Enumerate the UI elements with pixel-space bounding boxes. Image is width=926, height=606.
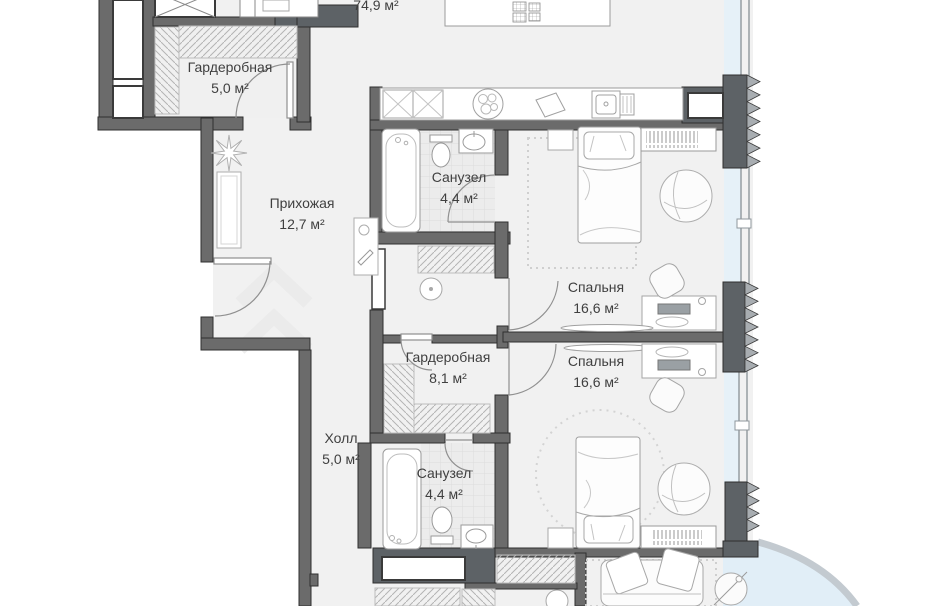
desk [642, 296, 716, 330]
hall-bench [217, 172, 241, 248]
room-name: Гардеробная [188, 57, 273, 78]
toilet [432, 507, 452, 533]
label-wardrobe-8: Гардеробная 8,1 м² [406, 347, 491, 389]
shaft-x-box [155, 0, 215, 17]
nightstand [548, 528, 573, 548]
label-living-area: 74,9 м² [353, 0, 398, 16]
nightstand [548, 130, 573, 150]
bed [576, 437, 640, 548]
pillow [584, 516, 633, 543]
hall-cabinet [240, 0, 318, 17]
label-bathroom-2: Санузел 4,4 м² [417, 463, 472, 505]
room-name: Гардеробная [406, 347, 491, 368]
clothes-rack [641, 128, 716, 151]
label-wardrobe-5: Гардеробная 5,0 м² [188, 57, 273, 99]
room-name: Холл [322, 428, 360, 449]
shoe-console [354, 218, 378, 275]
dresser [641, 526, 716, 548]
toilet-tank [430, 135, 452, 142]
kitchen-counter [380, 88, 683, 120]
label-prihozhaya: Прихожая 12,7 м² [270, 193, 335, 235]
room-name: Санузел [432, 167, 487, 188]
sink [466, 529, 486, 543]
desk [642, 344, 716, 378]
plant [211, 135, 247, 171]
room-area: 12,7 м² [270, 214, 335, 235]
kitchen-island [445, 0, 610, 26]
room-area: 16,6 м² [568, 298, 624, 319]
label-hall: Холл 5,0 м² [322, 428, 360, 470]
label-bedroom-2: Спальня 16,6 м² [568, 351, 624, 393]
room-name: Спальня [568, 351, 624, 372]
duct-niche [113, 0, 143, 79]
duct-niche [113, 86, 143, 118]
room-area: 8,1 м² [406, 368, 491, 389]
bed [578, 127, 641, 243]
room-name: Санузел [417, 463, 472, 484]
bottom-duct [382, 557, 465, 580]
label-bathroom-1: Санузел 4,4 м² [432, 167, 487, 209]
toilet [432, 143, 450, 167]
room-name: Прихожая [270, 193, 335, 214]
floor-plan: 74,9 м² Гардеробная 5,0 м² Прихожая 12,7… [0, 0, 926, 606]
room-area: 74,9 м² [353, 0, 398, 16]
room-area: 4,4 м² [432, 188, 487, 209]
room-area: 5,0 м² [188, 78, 273, 99]
floor-plan-drawing [0, 0, 926, 606]
toilet-tank [431, 536, 453, 544]
kitchen-duct [688, 93, 723, 118]
armchair [658, 463, 710, 515]
label-bedroom-1: Спальня 16,6 м² [568, 277, 624, 319]
armchair [660, 170, 712, 222]
room-area: 16,6 м² [568, 372, 624, 393]
room-area: 5,0 м² [322, 449, 360, 470]
room-name: Спальня [568, 277, 624, 298]
room-area: 4,4 м² [417, 484, 472, 505]
